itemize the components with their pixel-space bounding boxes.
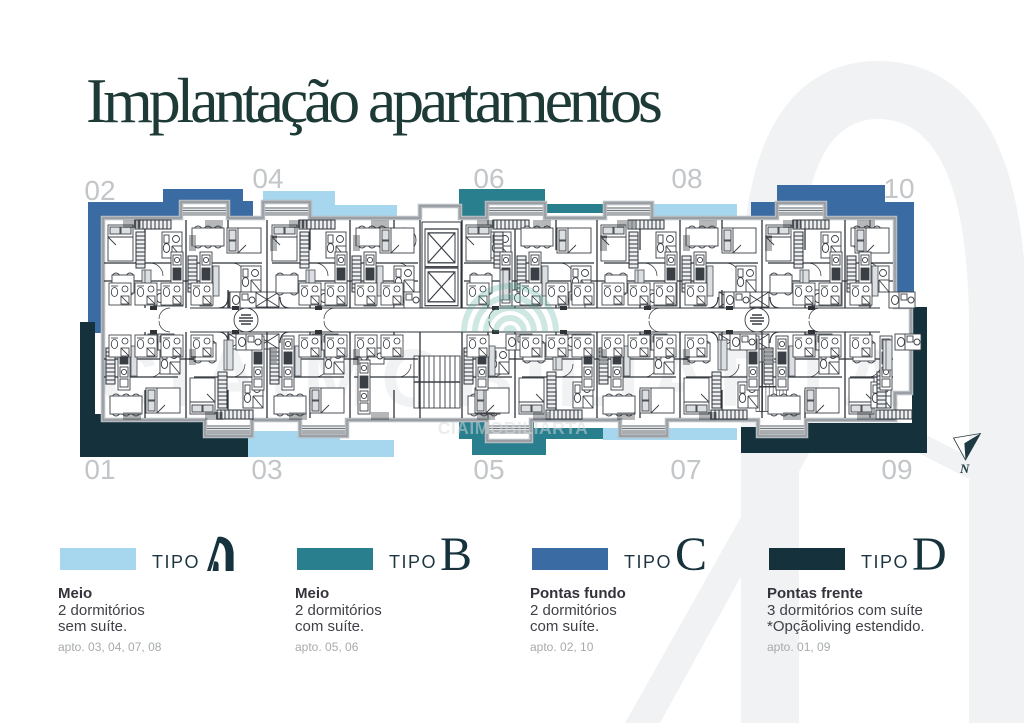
svg-text:02: 02: [84, 175, 115, 206]
svg-text:09: 09: [881, 454, 912, 485]
svg-text:07: 07: [670, 454, 701, 485]
svg-text:06: 06: [473, 163, 504, 194]
svg-text:10: 10: [883, 173, 914, 204]
svg-text:05: 05: [473, 454, 504, 485]
svg-text:03: 03: [251, 454, 282, 485]
svg-text:01: 01: [84, 454, 115, 485]
svg-text:N: N: [959, 461, 970, 476]
svg-text:CIAIMOBILIARTA: CIAIMOBILIARTA: [438, 418, 589, 438]
svg-text:04: 04: [252, 163, 283, 194]
svg-text:08: 08: [671, 163, 702, 194]
